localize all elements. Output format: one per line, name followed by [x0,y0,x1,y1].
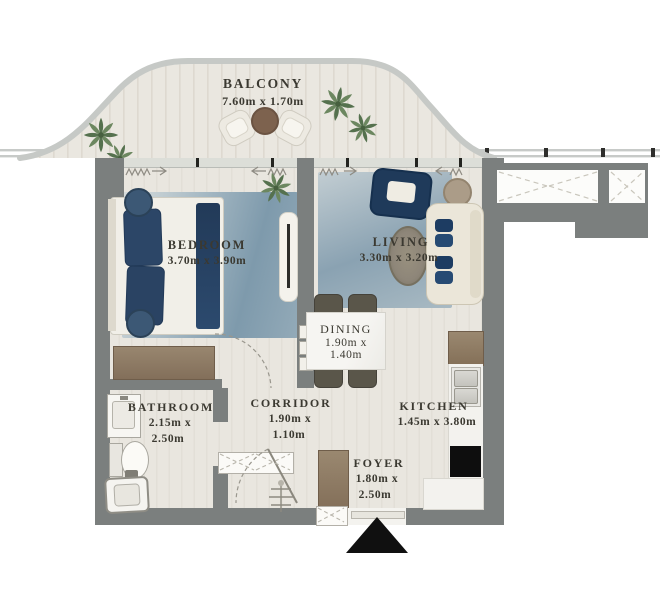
dining-dims: 1.40m [330,349,362,361]
kitchen-counter-return [423,478,484,510]
corridor-label: CORRIDOR [250,396,331,411]
sofa-pillow [435,234,453,247]
shaft-box [497,170,598,203]
window-mullion [415,158,418,167]
shaft-box [609,170,645,203]
dining-dims: 1.90m x [325,337,367,349]
sofa-backrest [470,210,481,298]
shower-tray [113,483,140,506]
balcony-label: BALCONY [223,76,303,92]
sofa-pillow [435,219,453,232]
nightstand [126,309,155,338]
corridor-wardrobe [218,452,294,474]
wall [213,388,228,422]
bed-headboard [108,199,116,331]
window-mullion [459,158,462,167]
window-mullion [196,158,199,167]
dresser [113,346,215,380]
dining-table: DINING 1.90m x 1.40m [306,312,386,370]
washer-box [316,506,348,526]
corridor-dims: 1.10m [273,429,306,441]
plant-icon [84,118,119,153]
armchair [369,167,434,221]
foyer-label: FOYER [354,456,405,471]
kitchen-label: KITCHEN [399,399,468,414]
balcony-dims: 7.60m x 1.70m [222,94,304,109]
bathroom-label: BATHROOM [128,400,214,415]
tv-icon [287,224,290,288]
bed-pillow [123,208,163,266]
faucet-icon [120,396,128,400]
shower [104,476,150,514]
bedroom-label: BEDROOM [168,238,247,253]
foyer-dims: 2.50m [359,489,392,501]
entrance-door [351,511,405,519]
cooktop [450,446,481,477]
foyer-closet [318,450,349,508]
core-slab [575,222,648,238]
bathroom-dims: 2.15m x [149,417,192,429]
balcony-table [252,108,278,134]
living-dims: 3.30m x 3.20m [360,252,439,264]
corridor-dims: 1.90m x [269,413,312,425]
window-mullion [271,158,274,167]
sink-basin [454,370,478,387]
sofa-pillow [435,271,453,284]
foyer-dims: 1.80m x [356,473,399,485]
kitchen-dims: 1.45m x 3.80m [398,416,477,428]
bathroom-dims: 2.50m [152,433,185,445]
bedroom-dims: 3.70m x 3.90m [168,255,247,267]
living-label: LIVING [373,235,430,250]
armchair-cushion [386,181,416,204]
wall [95,379,222,390]
window-mullion [346,158,349,167]
floor-plan: DINING 1.90m x 1.40m [0,0,660,595]
dining-label: DINING [320,322,372,337]
kitchen-cabinet [448,331,484,366]
nightstand [124,188,153,217]
